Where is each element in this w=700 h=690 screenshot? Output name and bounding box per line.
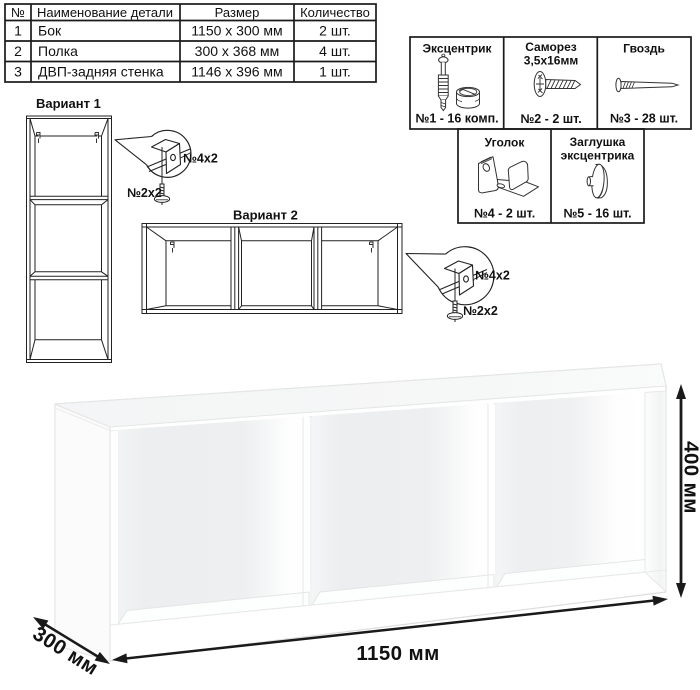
- svg-text:1150 мм: 1150 мм: [356, 642, 439, 665]
- svg-text:№4х2: №4х2: [183, 152, 218, 166]
- svg-text:Вариант 1: Вариант 1: [36, 96, 101, 111]
- svg-text:2: 2: [14, 43, 22, 59]
- svg-text:Вариант 2: Вариант 2: [233, 208, 298, 223]
- svg-text:Количество: Количество: [300, 5, 370, 20]
- svg-text:3,5х16мм: 3,5х16мм: [524, 54, 579, 68]
- svg-text:Уголок: Уголок: [485, 136, 526, 150]
- svg-text:№3 - 28 шт.: №3 - 28 шт.: [610, 112, 678, 126]
- svg-text:№4х2: №4х2: [475, 269, 510, 283]
- svg-text:2 шт.: 2 шт.: [319, 23, 351, 39]
- svg-text:№5 - 16 шт.: №5 - 16 шт.: [563, 207, 631, 221]
- svg-text:Саморез: Саморез: [525, 40, 577, 54]
- svg-text:№2х2: №2х2: [127, 186, 162, 200]
- svg-text:№2 - 2 шт.: №2 - 2 шт.: [520, 112, 581, 126]
- svg-text:эксцентрика: эксцентрика: [561, 149, 635, 163]
- svg-text:1 шт.: 1 шт.: [319, 64, 351, 80]
- svg-text:№2х2: №2х2: [463, 304, 498, 318]
- svg-text:№1 - 16 комп.: №1 - 16 комп.: [415, 112, 498, 126]
- svg-text:Полка: Полка: [38, 43, 78, 59]
- svg-text:1: 1: [14, 23, 22, 39]
- svg-text:300 х 368 мм: 300 х 368 мм: [195, 43, 280, 59]
- svg-text:Размер: Размер: [215, 5, 260, 20]
- svg-text:Наименование детали: Наименование детали: [37, 5, 173, 20]
- svg-text:1150 х 300 мм: 1150 х 300 мм: [191, 23, 282, 39]
- svg-text:Эксцентрик: Эксцентрик: [423, 42, 493, 56]
- svg-text:Заглушка: Заглушка: [570, 135, 626, 149]
- svg-text:Бок: Бок: [38, 23, 62, 39]
- svg-text:3: 3: [14, 64, 22, 80]
- svg-text:4 шт.: 4 шт.: [319, 43, 351, 59]
- svg-text:№: №: [11, 5, 25, 20]
- svg-text:400 мм: 400 мм: [680, 441, 700, 514]
- svg-text:ДВП-задняя стенка: ДВП-задняя стенка: [38, 64, 164, 80]
- svg-text:Гвоздь: Гвоздь: [623, 42, 665, 56]
- svg-text:№4 - 2 шт.: №4 - 2 шт.: [474, 207, 535, 221]
- svg-text:1146 х 396 мм: 1146 х 396 мм: [191, 64, 282, 80]
